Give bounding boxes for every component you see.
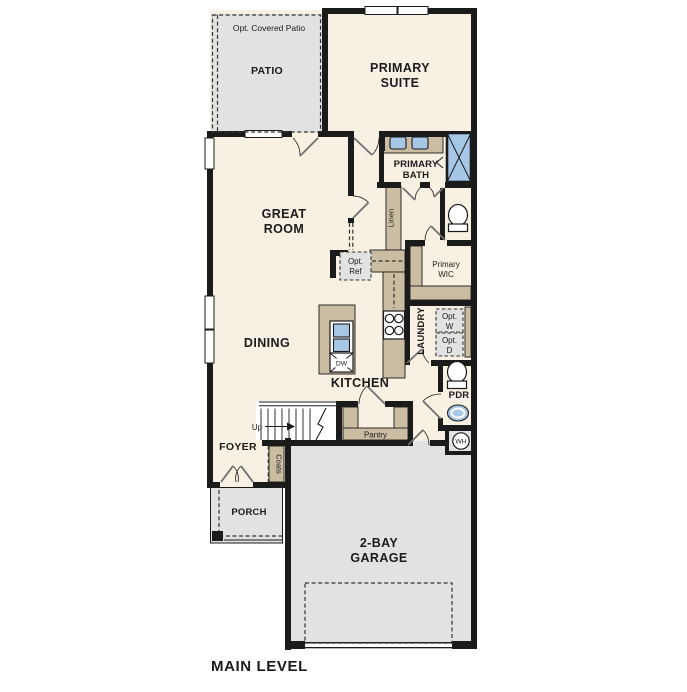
wall-segment [342,401,358,407]
wall-segment [430,440,445,446]
patio-label: PATIO [251,65,283,77]
primary-suite-label-line1: PRIMARY [370,61,430,75]
wall-segment [452,641,477,649]
window [398,7,428,15]
porch-column [212,531,223,541]
porch-label: PORCH [231,507,266,518]
wall-segment [285,438,291,650]
stairs-up-label: Up [252,423,263,432]
window [245,131,282,138]
great-room-label-line1: GREAT [262,207,307,221]
wall-segment [440,188,445,240]
powder-label: PDR [449,390,470,401]
bath-toilet [449,205,468,232]
wall-segment [420,182,430,188]
pantry-label: Pantry [364,431,387,440]
vanity-sink [390,137,406,149]
wall-segment [336,401,342,446]
opt-ref-label-line1: Opt. [348,257,363,266]
laundry-shelf [465,307,471,357]
primary-suite-label-line2: SUITE [381,76,420,90]
window [205,296,214,329]
island-sink [330,321,353,354]
wall-segment [377,182,401,188]
wall-segment [322,8,328,137]
vanity-sink [412,137,428,149]
wall-segment [262,440,285,446]
coats-label: Coats [275,454,284,474]
wall-segment [348,218,354,223]
wall-segment [285,641,305,649]
powder-sink [448,405,469,421]
opt-dryer-label-line1: Opt. [442,336,457,345]
primary-bath-label-line2: BATH [403,170,429,181]
wic-shelf-bottom [410,286,471,300]
wall-segment [445,451,477,455]
opt-covered-patio-label: Opt. Covered Patio [233,23,306,33]
floorplan-page: DW WH Opt. Covered Patio PATIO PRIMARY S… [0,0,687,687]
dining-label: DINING [244,336,290,350]
garage-door-sill [305,647,452,648]
garage-label-line2: GARAGE [350,551,407,565]
great-room-label-line2: ROOM [264,222,305,236]
wall-segment [438,425,477,431]
wall-segment [385,401,408,407]
dishwasher: DW [330,353,353,372]
linen-label: Linen [387,209,396,227]
window [205,330,214,363]
water-heater-label: WH [455,439,466,446]
wall-segment [471,8,477,649]
powder-toilet [448,362,467,389]
kitchen-label: KITCHEN [331,376,389,390]
primary-bath-label-line1: PRIMARY [394,159,439,170]
primary-wic-label-line1: Primary [432,260,460,269]
garage-label-line1: 2-BAY [360,536,399,550]
plan-title: MAIN LEVEL [211,658,308,675]
wall-segment [447,240,477,246]
wall-segment [405,300,477,306]
window [365,7,397,15]
primary-wic-label-line2: WIC [438,270,454,279]
opt-washer-label-line2: W [446,322,454,331]
opt-dryer-label-line2: D [447,346,453,355]
floorplan-drawing: DW WH Opt. Covered Patio PATIO PRIMARY S… [0,0,687,687]
wall-segment [408,401,413,446]
wall-segment [379,151,384,182]
wall-segment [285,440,408,446]
wall-segment [379,131,385,151]
laundry-label: LAUNDRY [416,307,427,355]
wall-segment [438,366,443,392]
shower [447,133,471,182]
wall-segment [330,250,336,278]
window [205,138,214,169]
foyer-label: FOYER [219,441,257,453]
cooktop [384,311,405,339]
dishwasher-label: DW [336,361,348,368]
water-heater: WH [453,433,469,449]
wall-segment [348,137,354,196]
opt-washer-label-line1: Opt. [442,312,457,321]
opt-ref-label-line2: Ref [349,267,362,276]
